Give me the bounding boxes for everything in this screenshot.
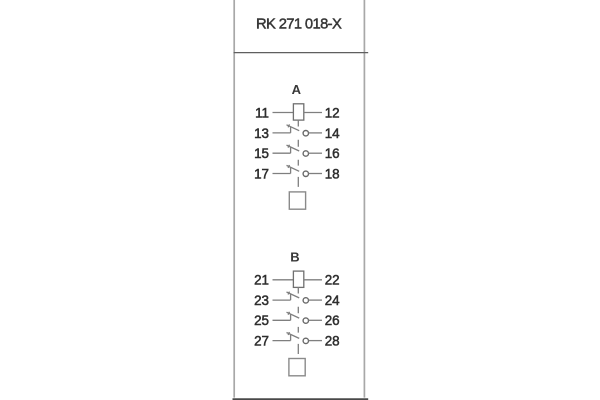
svg-text:27: 27 [254,334,269,349]
svg-text:13: 13 [254,126,269,141]
svg-text:28: 28 [325,334,340,349]
svg-text:A: A [292,82,302,97]
svg-text:17: 17 [254,166,269,181]
svg-text:12: 12 [325,105,340,120]
svg-text:22: 22 [325,273,340,288]
svg-text:25: 25 [254,313,269,328]
svg-text:21: 21 [254,273,269,288]
svg-text:23: 23 [254,293,269,308]
svg-text:B: B [290,250,299,265]
svg-text:18: 18 [325,166,340,181]
svg-text:26: 26 [325,313,340,328]
svg-text:15: 15 [254,146,269,161]
svg-text:11: 11 [255,105,269,120]
svg-text:24: 24 [325,293,340,308]
svg-text:RK 271 018-X: RK 271 018-X [256,16,342,32]
svg-text:14: 14 [325,126,340,141]
svg-text:16: 16 [325,146,340,161]
